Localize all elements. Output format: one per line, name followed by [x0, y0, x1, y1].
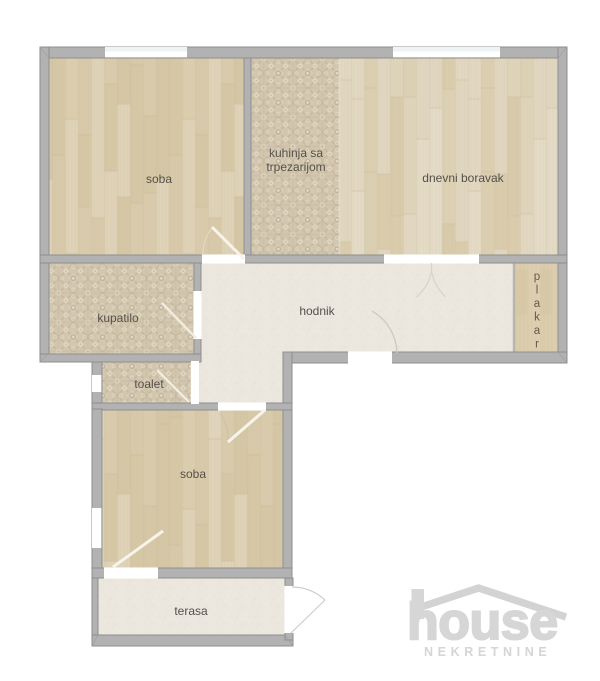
svg-text:trpezarijom: trpezarijom: [266, 160, 325, 174]
svg-text:house: house: [407, 593, 558, 651]
svg-text:l: l: [536, 285, 539, 297]
svg-text:dnevni boravak: dnevni boravak: [422, 171, 504, 185]
svg-text:soba: soba: [146, 172, 172, 186]
svg-text:k: k: [534, 312, 540, 324]
svg-text:r: r: [535, 339, 539, 351]
svg-text:kupatilo: kupatilo: [97, 311, 139, 325]
svg-text:toalet: toalet: [134, 377, 164, 391]
svg-text:terasa: terasa: [174, 604, 208, 618]
svg-text:soba: soba: [180, 467, 206, 481]
svg-text:NEKRETNINE: NEKRETNINE: [424, 645, 551, 659]
svg-text:a: a: [534, 298, 541, 310]
svg-text:kuhinja sa: kuhinja sa: [269, 146, 323, 160]
svg-text:hodnik: hodnik: [299, 304, 335, 318]
svg-text:a: a: [534, 325, 541, 337]
svg-text:p: p: [534, 271, 540, 283]
